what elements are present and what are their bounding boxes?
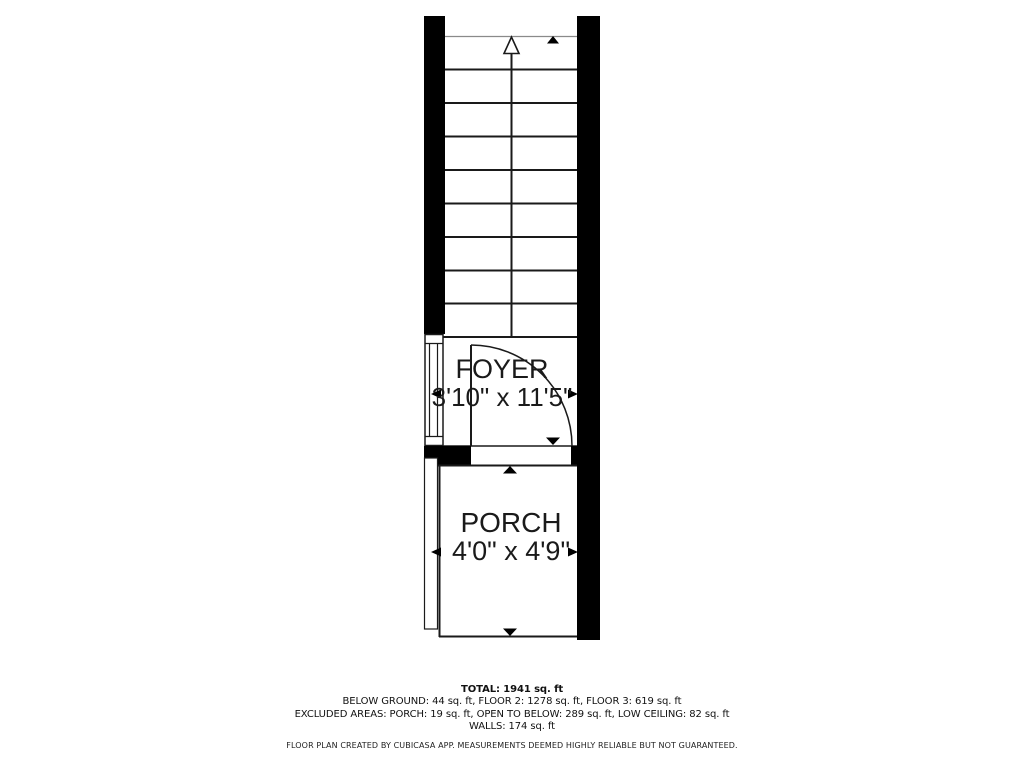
porch-room-label: PORCH: [460, 508, 561, 537]
summary-total: TOTAL: 1941 sq. ft: [0, 684, 1024, 696]
disclaimer-text: FLOOR PLAN CREATED BY CUBICASA APP. MEAS…: [0, 741, 1024, 750]
porch-room-dimensions: 4'0" x 4'9": [452, 537, 570, 565]
stairs-up-arrow-icon: [504, 37, 519, 54]
foyer-room-dimensions: 3'10" x 11'5": [432, 384, 573, 411]
left-wall: [424, 16, 445, 334]
porch-exit-marker-icon: [503, 629, 517, 637]
door-threshold-marker-icon: [546, 438, 560, 446]
summary-walls: WALLS: 174 sq. ft: [0, 721, 1024, 733]
divider-wall-right: [571, 446, 577, 466]
right-wall: [577, 16, 600, 640]
porch-entry-marker-icon: [503, 466, 517, 474]
porch-railing: [425, 458, 438, 629]
stair-opening-marker-icon: [547, 36, 559, 44]
summary-excluded-areas: EXCLUDED AREAS: PORCH: 19 sq. ft, OPEN T…: [0, 709, 1024, 721]
area-summary: TOTAL: 1941 sq. ft BELOW GROUND: 44 sq. …: [0, 684, 1024, 734]
summary-floors: BELOW GROUND: 44 sq. ft, FLOOR 2: 1278 s…: [0, 696, 1024, 708]
floor-plan-canvas: FOYER 3'10" x 11'5" PORCH 4'0" x 4'9" TO…: [0, 0, 1024, 768]
foyer-room-label: FOYER: [455, 355, 548, 383]
